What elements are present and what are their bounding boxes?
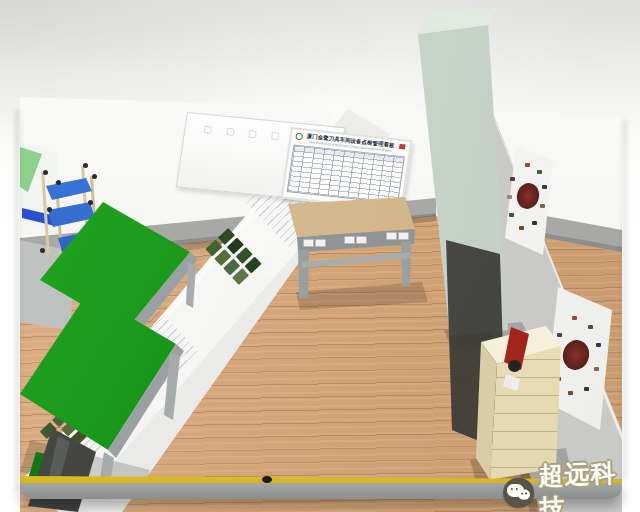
cart-joint [83,163,88,168]
poster-photo-chip [568,391,573,395]
stamp-glyph: ▢ [270,131,280,141]
poster-photo-chip [509,213,514,217]
poster-photo-chip [510,177,515,181]
poster-photo-chip [519,226,524,230]
drawer-handle [356,236,367,244]
stamp-glyph: ▢ [203,125,213,135]
fire-extinguisher-valve [508,360,521,372]
stamp-glyph: ▢ [225,127,235,137]
poster-photo-chip [542,185,547,189]
red-corner-mark [399,144,406,150]
wechat-eye [516,488,518,490]
cart-joint [92,174,97,179]
cart-joint [43,170,48,175]
cart-joint [56,180,61,185]
poster-photo-chip [540,204,545,208]
kanban-table-grid [287,144,405,204]
poster-photo-chip [532,221,537,225]
drawer-handle [398,232,409,240]
cart-joint [40,248,45,253]
wechat-eye [511,488,513,490]
drawer-handle [303,239,314,247]
wechat-eye [525,493,527,495]
stamp-glyph: ▢ [248,129,258,139]
cart-joint [47,207,52,212]
rendered-workshop-scene: ▢ ▢ ▢ ▢ 厦门金鹭刀具车间设备点检管理看板 Tool Workshop E… [0,0,640,512]
wechat-bubble-small [518,489,530,499]
brand-label: 超远科技 [538,456,640,512]
wechat-icon [503,477,535,508]
scene-right-edge-shadow [620,120,627,480]
poster-photo-chip [557,333,562,337]
poster-photo-chip [507,195,512,199]
drawer-handle [315,239,326,247]
poster-photo-chip [572,316,577,320]
floor-line-dot [262,476,272,483]
drawer-handle [386,232,397,240]
poster-photo-chip [596,343,601,347]
wechat-eye [521,493,523,495]
poster-photo-chip [537,170,542,174]
poster-photo-chip [525,163,530,167]
poster-photo-chip [584,387,589,391]
poster-photo-chip [588,325,593,329]
drawer-handle [344,236,355,244]
poster-photo-chip [594,367,599,371]
watermark: 超远科技 [502,456,640,512]
scene-left-edge-shadow [15,110,22,490]
cart-joint [88,200,93,205]
